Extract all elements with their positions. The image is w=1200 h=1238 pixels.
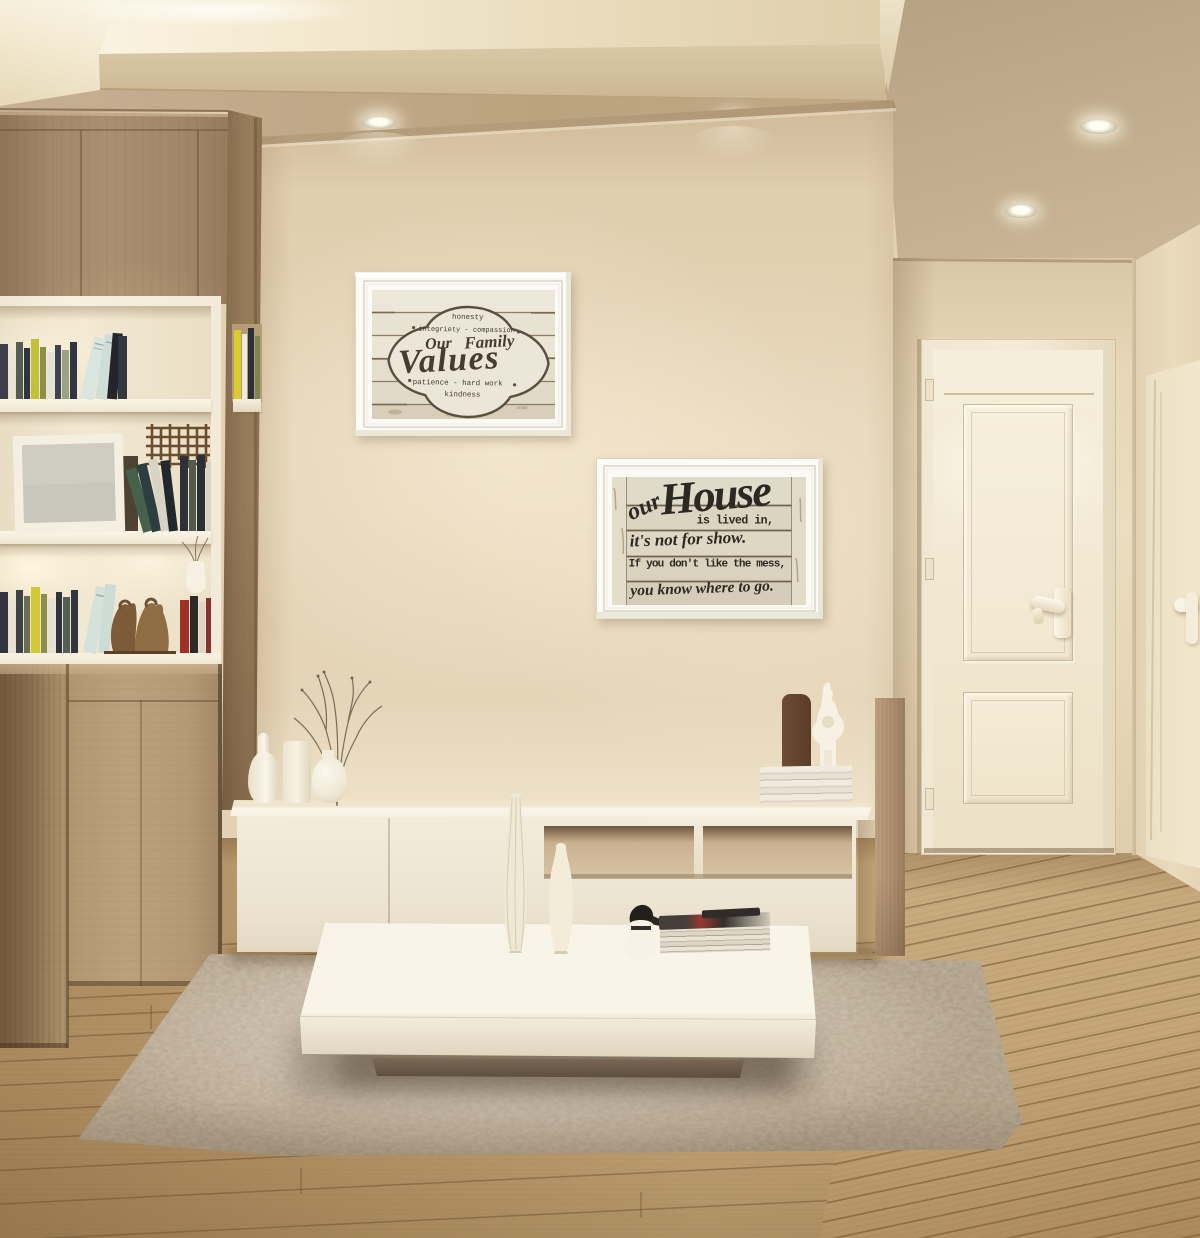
svg-text:patience - hard work: patience - hard work [413,379,504,389]
svg-text:it's not for show.: it's not for show. [629,527,746,550]
svg-text:kindness: kindness [444,391,480,400]
svg-text:Values: Values [397,339,500,381]
svg-text:If you don't like the mess,: If you don't like the mess, [629,559,786,571]
svg-text:is lived in,: is lived in, [697,515,774,528]
svg-text:cindy: cindy [517,406,529,411]
svg-text:honesty: honesty [452,314,484,323]
